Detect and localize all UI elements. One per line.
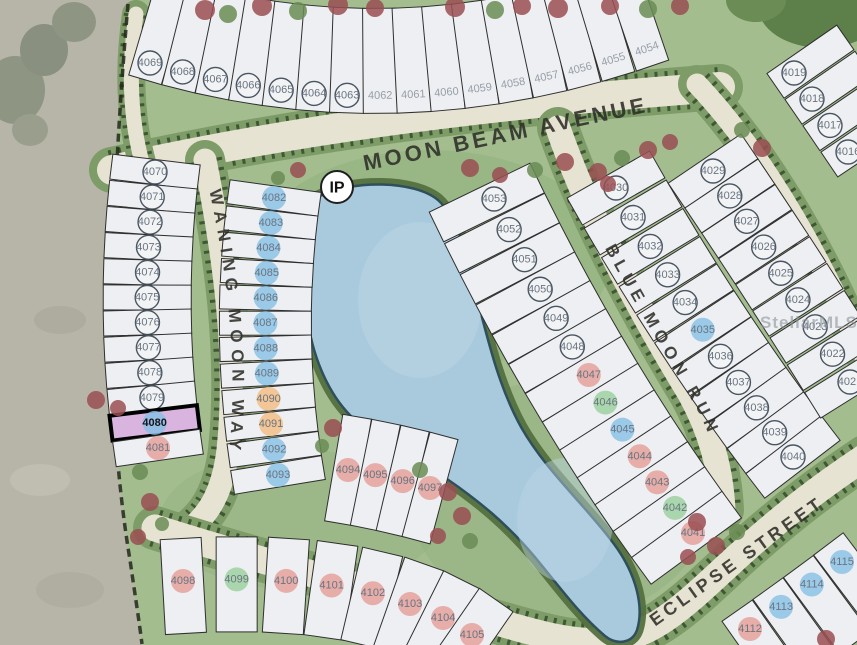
tree — [132, 464, 148, 480]
lot-number: 4061 — [401, 88, 426, 101]
lot-number: 4092 — [262, 444, 286, 456]
tree — [492, 167, 508, 183]
lot-number: 4091 — [259, 418, 283, 430]
tree — [289, 2, 307, 20]
lot-number: 4022 — [820, 348, 844, 360]
lot-number: 4034 — [673, 297, 697, 309]
tree — [110, 400, 126, 416]
tree — [614, 150, 630, 166]
tree — [662, 134, 678, 150]
lot-number: 4068 — [170, 66, 194, 78]
field-texture — [10, 464, 70, 496]
tree — [195, 0, 215, 20]
lot-number: 4037 — [726, 376, 750, 388]
lot-number: 4105 — [460, 629, 484, 641]
lot-number: 4089 — [255, 368, 279, 380]
lot-number: 4095 — [363, 469, 387, 481]
tree — [52, 2, 96, 42]
tree — [707, 537, 725, 555]
lot-number: 4067 — [203, 73, 227, 85]
tree — [639, 0, 657, 18]
lot-4100[interactable]: 4100 — [262, 537, 309, 634]
tree — [688, 513, 706, 531]
lot-number: 4072 — [138, 216, 162, 228]
lot-number: 4036 — [708, 350, 732, 362]
tree — [141, 493, 159, 511]
lot-number: 4099 — [224, 573, 248, 585]
tree — [130, 529, 146, 545]
lot-4075[interactable]: 4075 — [103, 285, 191, 310]
lot-number: 4087 — [253, 317, 277, 329]
lot-number: 4038 — [744, 402, 768, 414]
tree — [486, 1, 504, 19]
field-texture — [34, 306, 86, 334]
lot-number: 4080 — [142, 417, 166, 429]
lot-4099[interactable]: 4099 — [216, 537, 257, 632]
lot-number: 4060 — [434, 85, 459, 99]
tree — [639, 141, 657, 159]
lot-number: 4024 — [786, 294, 810, 306]
lot-number: 4053 — [482, 193, 506, 205]
lot-number: 4085 — [255, 267, 279, 279]
lot-number: 4097 — [418, 482, 442, 494]
lot-number: 4049 — [544, 312, 568, 324]
lot-number: 4101 — [319, 580, 343, 592]
lot-number: 4052 — [497, 224, 521, 236]
lot-number: 4046 — [593, 397, 617, 409]
lot-number: 4073 — [136, 241, 160, 253]
lot-number: 4051 — [512, 254, 536, 266]
tree — [87, 391, 105, 409]
lot-number: 4032 — [638, 240, 662, 252]
lot-number: 4090 — [256, 393, 280, 405]
lot-number: 4104 — [431, 612, 455, 624]
lot-number: 4050 — [528, 283, 552, 295]
lot-number: 4096 — [390, 475, 414, 487]
lot-number: 4115 — [830, 556, 854, 568]
lot-4062[interactable]: 4062 — [363, 8, 398, 113]
lot-number: 4100 — [274, 575, 298, 587]
lot-number: 4047 — [577, 369, 601, 381]
lot-number: 4065 — [269, 84, 293, 96]
lot-number: 4045 — [610, 424, 634, 436]
tree — [219, 5, 237, 23]
map-pin-label: IP — [329, 180, 344, 197]
lot-number: 4021 — [838, 376, 857, 388]
lot-number: 4074 — [135, 266, 159, 278]
watermark: StellarMLS — [760, 313, 857, 332]
lot-number: 4094 — [336, 464, 360, 476]
tree — [290, 162, 306, 178]
lot-number: 4017 — [818, 119, 842, 131]
lot-number: 4082 — [262, 192, 286, 204]
tree — [734, 122, 750, 138]
lot-number: 4078 — [138, 367, 162, 379]
lot-number: 4043 — [645, 476, 669, 488]
tree — [324, 419, 342, 437]
lot-4063[interactable]: 4063 — [330, 7, 368, 113]
tree — [753, 139, 771, 157]
lot-number: 4063 — [335, 89, 359, 101]
lot-number: 4031 — [621, 212, 645, 224]
lot-number: 4088 — [254, 342, 278, 354]
lot-number: 4019 — [782, 67, 806, 79]
field-texture — [36, 572, 104, 608]
lot-number: 4070 — [143, 166, 167, 178]
lot-number: 4093 — [266, 469, 290, 481]
tree — [271, 171, 285, 185]
lot-number: 4077 — [136, 342, 160, 354]
lot-number: 4040 — [781, 451, 805, 463]
lot-number: 4018 — [800, 93, 824, 105]
lot-number: 4048 — [560, 341, 584, 353]
plat-map: 4069406840674066406540644063406240614060… — [0, 0, 857, 645]
lot-number: 4042 — [663, 502, 687, 514]
lot-number: 4025 — [769, 267, 793, 279]
lot-number: 4084 — [256, 242, 280, 254]
lot-number: 4075 — [135, 291, 159, 303]
lot-number: 4113 — [769, 601, 793, 613]
tree — [462, 533, 478, 549]
tree — [430, 528, 446, 544]
lot-number: 4029 — [701, 165, 725, 177]
lot-number: 4114 — [800, 579, 824, 591]
lot-4073[interactable]: 4073 — [104, 233, 193, 262]
tree — [461, 159, 479, 177]
lot-number: 4062 — [368, 90, 393, 102]
lot-number: 4027 — [734, 215, 758, 227]
tree — [155, 517, 169, 531]
tree — [412, 462, 428, 478]
lot-number: 4069 — [138, 57, 162, 69]
lot-number: 4103 — [398, 598, 422, 610]
tree — [315, 439, 329, 453]
lot-number: 4044 — [627, 450, 651, 462]
tree — [680, 549, 696, 565]
tree — [600, 176, 616, 192]
lot-number: 4071 — [140, 191, 164, 203]
lot-number: 4079 — [140, 392, 164, 404]
lot-number: 4028 — [718, 190, 742, 202]
lot-number: 4076 — [135, 317, 159, 329]
lot-number: 4039 — [762, 427, 786, 439]
lot-number: 4083 — [259, 217, 283, 229]
lot-number: 4016 — [836, 146, 857, 158]
lot-4074[interactable]: 4074 — [103, 259, 192, 286]
lot-4098[interactable]: 4098 — [160, 537, 206, 634]
lot-number: 4035 — [691, 324, 715, 336]
lot-number: 4033 — [655, 269, 679, 281]
map-pin-icon[interactable]: IP — [321, 171, 353, 203]
lot-number: 4064 — [302, 87, 326, 99]
lot-number: 4112 — [738, 623, 762, 635]
lot-4076[interactable]: 4076 — [103, 309, 192, 336]
lot-number: 4081 — [146, 442, 170, 454]
tree — [556, 153, 574, 171]
tree — [527, 162, 543, 178]
tree — [729, 524, 745, 540]
lot-number: 4102 — [361, 587, 385, 599]
tree — [439, 483, 457, 501]
lot-number: 4026 — [751, 241, 775, 253]
tree — [453, 507, 471, 525]
tree — [12, 114, 48, 146]
lot-number: 4086 — [253, 292, 277, 304]
lot-number: 4066 — [236, 79, 260, 91]
lot-number: 4098 — [171, 575, 195, 587]
